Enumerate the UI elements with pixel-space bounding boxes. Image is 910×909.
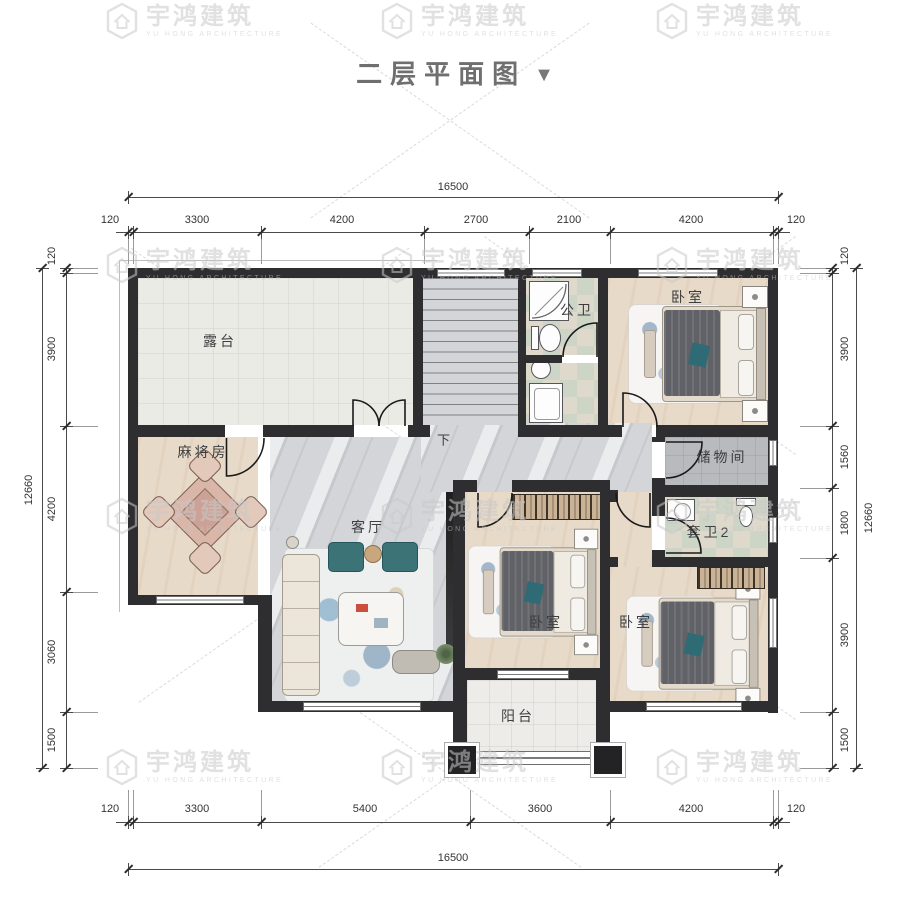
- dim-extension: [470, 790, 471, 816]
- wall: [453, 480, 465, 680]
- label-mahjong: 麻将房: [178, 442, 229, 462]
- label-terrace: 露台: [203, 331, 237, 351]
- window: [532, 269, 582, 277]
- watermark-brand-en: YU HONG ARCHITECTURE: [421, 31, 558, 38]
- watermark-hexagon-icon: [655, 748, 689, 786]
- window: [769, 598, 777, 648]
- label-stair-down: 下: [437, 430, 451, 449]
- watermark-hexagon-icon: [105, 2, 139, 40]
- dim-right-seg: 3900: [839, 337, 851, 361]
- wardrobe-bedroom-mid: [512, 494, 602, 520]
- nightstand: [574, 529, 598, 549]
- ensuite-toilet-tank: [736, 498, 756, 506]
- watermark-brand-en: YU HONG ARCHITECTURE: [146, 31, 283, 38]
- wall: [610, 557, 618, 567]
- nightstand: [742, 286, 768, 308]
- watermark-hexagon-icon: [105, 748, 139, 786]
- toilet: [539, 324, 561, 352]
- wall: [128, 425, 225, 437]
- floor-stairs: [423, 278, 518, 425]
- dim-extension: [72, 426, 98, 427]
- dim-extension: [800, 712, 826, 713]
- watermark-logo: 宇鸿建筑YU HONG ARCHITECTURE: [105, 2, 283, 40]
- label-public-bath: 公卫: [560, 300, 594, 320]
- wall: [453, 680, 467, 752]
- dim-extension: [778, 238, 779, 264]
- window: [156, 596, 244, 604]
- dim-extension: [72, 712, 98, 713]
- bed-bench: [644, 330, 656, 378]
- dim-left-seg: 4200: [46, 497, 58, 521]
- bed: [626, 588, 760, 696]
- dim-top-seg: 2100: [557, 214, 581, 226]
- dim-bottom-seg: 120: [787, 803, 805, 815]
- dim-extension: [424, 238, 425, 264]
- window: [437, 269, 505, 277]
- nightstand: [574, 635, 598, 655]
- sofa-group: [280, 540, 440, 705]
- balcony-sliding-door: [497, 670, 569, 679]
- floorplan-canvas: 二层平面图▼ 16500 120 3300 4200 2700 2100 420…: [0, 0, 910, 909]
- dim-extension: [800, 268, 826, 269]
- window: [769, 440, 777, 466]
- dim-top-seg: 120: [787, 214, 805, 226]
- column: [448, 746, 476, 774]
- wall: [656, 425, 778, 437]
- dim-extension: [800, 426, 826, 427]
- watermark-logo: 宇鸿建筑YU HONG ARCHITECTURE: [655, 2, 833, 40]
- wall: [518, 425, 622, 437]
- watermark-brand: 宇鸿建筑: [696, 3, 804, 30]
- door-arc-bedroom-top: [621, 391, 658, 428]
- door-arc-terrace: [350, 396, 408, 428]
- label-living: 客厅: [351, 517, 385, 537]
- bed-headboard: [749, 600, 759, 688]
- watermark-text: 宇鸿建筑YU HONG ARCHITECTURE: [421, 4, 558, 38]
- dim-extension: [610, 790, 611, 816]
- dim-right-seg: 3900: [839, 623, 851, 647]
- title-dropdown-icon: ▼: [534, 64, 554, 86]
- label-bedroom-top: 卧室: [671, 287, 705, 307]
- dim-bottom-seg: 4200: [679, 803, 703, 815]
- dim-bottom-seg: 3600: [528, 803, 552, 815]
- dim-extension: [800, 488, 826, 489]
- dimension-line: [116, 232, 790, 233]
- window: [303, 702, 421, 711]
- dim-left-seg: 1500: [46, 728, 58, 752]
- label-bedroom-right: 卧室: [619, 612, 653, 632]
- nightstand: [742, 400, 768, 422]
- dimension-line: [42, 268, 43, 768]
- dim-left-total: 12660: [23, 475, 35, 506]
- dim-extension: [128, 790, 129, 816]
- label-bedroom-mid: 卧室: [529, 612, 563, 632]
- dim-right-seg: 120: [839, 247, 851, 265]
- dimension-line: [832, 268, 833, 768]
- dimension-line: [128, 869, 778, 870]
- watermark-brand: 宇鸿建筑: [146, 3, 254, 30]
- dim-extension: [800, 273, 826, 274]
- dim-extension: [529, 238, 530, 264]
- watermark-brand: 宇鸿建筑: [421, 3, 529, 30]
- page-title-text: 二层平面图: [356, 59, 526, 89]
- dim-left-seg: 3060: [46, 640, 58, 664]
- dim-extension: [800, 768, 826, 769]
- wall: [413, 278, 423, 425]
- side-table: [364, 545, 382, 563]
- watermark-hexagon-icon: [380, 2, 414, 40]
- dim-extension: [72, 268, 98, 269]
- watermark-hexagon-icon: [655, 2, 689, 40]
- wall: [408, 425, 430, 437]
- dim-right-total: 12660: [863, 503, 875, 534]
- window: [646, 702, 742, 711]
- door-arc-mahjong: [225, 437, 266, 478]
- ensuite-toilet: [739, 506, 753, 527]
- dim-right-seg: 1560: [839, 445, 851, 469]
- floor-lamp: [286, 536, 299, 549]
- dim-top-seg: 4200: [679, 214, 703, 226]
- dimension-line: [856, 268, 857, 768]
- vanity-sink: [534, 388, 560, 420]
- dimension-line: [128, 197, 778, 198]
- dim-extension: [72, 768, 98, 769]
- bed-headboard: [587, 549, 596, 635]
- bed-headboard: [756, 308, 766, 400]
- mahjong-chair: [233, 494, 270, 531]
- bed-bench: [483, 570, 494, 615]
- dim-top-seg: 2700: [464, 214, 488, 226]
- wall: [652, 557, 778, 567]
- bed-pillow: [570, 555, 585, 588]
- toilet-tank: [531, 326, 539, 350]
- vanity-counter: [529, 383, 563, 423]
- door-arc-public-bath: [560, 321, 599, 358]
- wall: [596, 680, 610, 752]
- ottoman: [392, 650, 440, 674]
- coffee-table-item: [374, 618, 388, 628]
- parapet-line: [119, 260, 437, 261]
- wall: [652, 478, 665, 516]
- watermark-brand-en: YU HONG ARCHITECTURE: [696, 31, 833, 38]
- coffee-table: [338, 592, 404, 646]
- dim-extension: [261, 790, 262, 816]
- watermark-text: 宇鸿建筑YU HONG ARCHITECTURE: [146, 4, 283, 38]
- dim-extension: [800, 558, 826, 559]
- dim-extension: [128, 238, 129, 264]
- dim-extension: [133, 790, 134, 816]
- dim-extension: [773, 790, 774, 816]
- window: [638, 269, 718, 277]
- wall: [652, 485, 778, 497]
- dim-extension: [133, 238, 134, 264]
- wall: [512, 480, 602, 492]
- door-arc-bedroom-mid: [476, 491, 513, 528]
- wall: [258, 595, 272, 712]
- dim-extension: [72, 273, 98, 274]
- dim-top-seg: 3300: [185, 214, 209, 226]
- wall: [526, 355, 562, 363]
- dim-top-seg: 120: [101, 214, 119, 226]
- bed-pillow: [738, 314, 754, 350]
- page-title: 二层平面图▼: [0, 54, 910, 91]
- dim-left-seg: 3900: [46, 337, 58, 361]
- watermark-brand: 宇鸿建筑: [146, 749, 254, 776]
- dim-right-seg: 1500: [839, 728, 851, 752]
- dim-extension: [778, 790, 779, 816]
- dimension-line: [116, 822, 790, 823]
- watermark-logo: 宇鸿建筑YU HONG ARCHITECTURE: [105, 748, 283, 786]
- watermark-brand: 宇鸿建筑: [696, 749, 804, 776]
- coffee-table-item: [356, 604, 368, 612]
- watermark-text: 宇鸿建筑YU HONG ARCHITECTURE: [146, 750, 283, 784]
- watermark-brand-en: YU HONG ARCHITECTURE: [696, 777, 833, 784]
- dim-top-seg: 4200: [330, 214, 354, 226]
- wardrobe-bedroom-right: [697, 567, 765, 589]
- bed-pillow: [732, 605, 747, 640]
- dim-extension: [72, 592, 98, 593]
- label-ensuite: 套卫2: [687, 522, 732, 542]
- dim-top-total: 16500: [438, 181, 469, 193]
- dim-bottom-seg: 3300: [185, 803, 209, 815]
- dim-bottom-seg: 120: [101, 803, 119, 815]
- column: [594, 746, 622, 774]
- bed-pillow: [738, 360, 754, 396]
- parapet-line: [119, 260, 120, 612]
- sofa: [282, 554, 320, 696]
- bed-pillow: [570, 598, 585, 631]
- dim-bottom-seg: 5400: [353, 803, 377, 815]
- wall: [598, 278, 608, 425]
- wall: [518, 278, 526, 425]
- dim-right-seg: 1800: [839, 511, 851, 535]
- label-balcony: 阳台: [501, 706, 535, 726]
- dim-extension: [773, 238, 774, 264]
- bed-pillow: [732, 649, 747, 684]
- dim-left-seg: 120: [46, 247, 58, 265]
- armchair: [382, 542, 418, 572]
- wall: [263, 425, 354, 437]
- door-arc-bedroom-right: [615, 491, 652, 528]
- watermark-text: 宇鸿建筑YU HONG ARCHITECTURE: [696, 4, 833, 38]
- watermark-logo: 宇鸿建筑YU HONG ARCHITECTURE: [380, 2, 558, 40]
- armchair: [328, 542, 364, 572]
- watermark-hexagon-icon: [380, 748, 414, 786]
- dim-extension: [610, 238, 611, 264]
- dim-extension: [261, 238, 262, 264]
- window: [769, 517, 777, 543]
- watermark-brand-en: YU HONG ARCHITECTURE: [146, 777, 283, 784]
- label-storage: 储物间: [697, 447, 748, 467]
- dim-bottom-total: 16500: [438, 852, 469, 864]
- dimension-line: [66, 268, 67, 768]
